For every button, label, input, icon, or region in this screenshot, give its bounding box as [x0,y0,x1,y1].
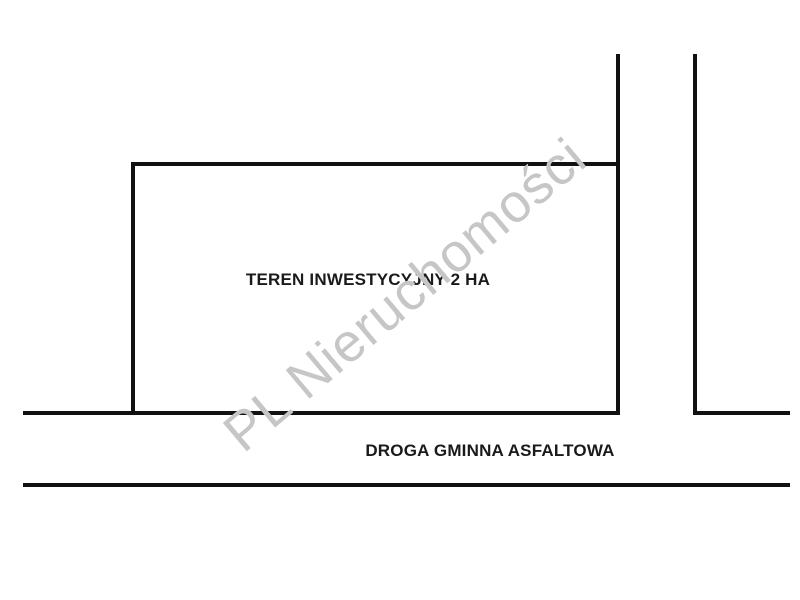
road-bottom-edge [23,483,790,487]
side-road-left-edge [616,54,620,415]
road-label: DROGA GMINNA ASFALTOWA [340,441,640,461]
parcel-top-edge [131,162,620,166]
road-top-edge-left-segment [23,411,620,415]
parcel-label: TEREN INWESTYCYJNY 2 HA [133,270,603,290]
land-plot-diagram: TEREN INWESTYCYJNY 2 HA DROGA GMINNA ASF… [0,0,800,600]
road-top-edge-right-segment [693,411,790,415]
side-road-right-edge [693,54,697,415]
